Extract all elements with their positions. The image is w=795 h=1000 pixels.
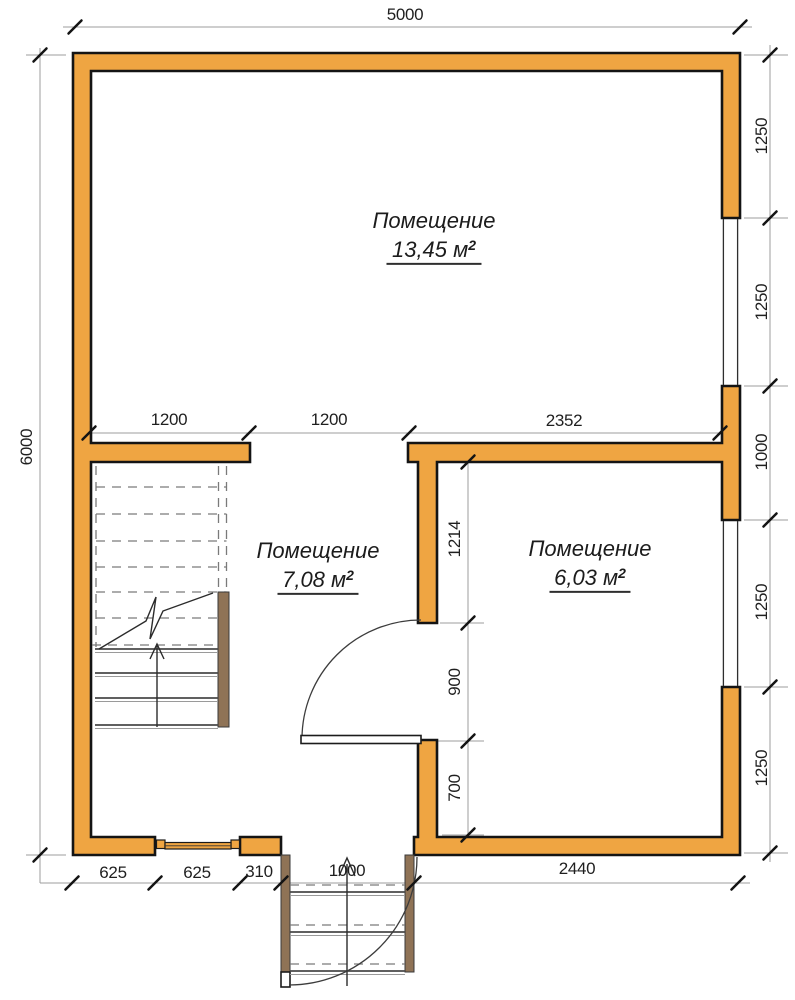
stair-direction-arrow [150,644,164,727]
dim-vertical-label-2: 900 [445,668,465,695]
dim-interior-label-1: 1200 [151,410,188,430]
porch-left-post [281,855,290,972]
interior-door-leaf [301,736,421,744]
room-area: 13,45 м2 [387,238,481,265]
room-area: 7,08 м2 [277,568,359,595]
stair-stringer [218,592,229,727]
dim-bottom-label-2: 625 [183,863,210,883]
window-right-upper [723,219,737,385]
dim-right-label-4: 1250 [752,584,772,621]
wall-bottom-stub [240,837,281,855]
wall-bottom-right [414,687,740,855]
dim-bottom-label-3: 310 [245,862,272,882]
window-bottom [157,840,240,849]
interior-door-swing-arc [302,620,421,739]
porch-door-end [281,972,290,987]
floor-plan: 5000 6000 1250 1250 1000 1250 1250 1200 … [0,0,795,1000]
dim-top-label: 5000 [387,5,424,25]
porch-right-post [405,855,414,972]
room-name: Помещение [528,537,651,561]
room-label-1: Помещение 13,45 м2 [372,209,495,265]
dim-right-label-3: 1000 [752,434,772,471]
dim-left-label: 6000 [17,429,37,466]
room-name: Помещение [256,539,379,563]
room-label-3: Помещение 6,03 м2 [528,537,651,593]
room-label-2: Помещение 7,08 м2 [256,539,379,595]
dim-right-label-5: 1250 [752,750,772,787]
dim-interior-label-3: 2352 [546,411,583,431]
dim-bottom-label-5: 2440 [559,859,596,879]
dim-bottom-label-1: 625 [99,863,126,883]
floor-plan-drawing [0,0,795,1000]
room-name: Помещение [372,209,495,233]
stair-break-line [99,593,213,649]
dim-interior-label-2: 1200 [311,410,348,430]
dim-right-label-1: 1250 [752,118,772,155]
window-right-lower [723,521,737,686]
dim-vertical-label-1: 1214 [445,521,465,558]
room-area: 6,03 м2 [549,566,631,593]
dim-bottom-label-4: 1000 [329,861,366,881]
interior-door [301,620,421,744]
dim-vertical-label-3: 700 [445,774,465,801]
dim-right-label-2: 1250 [752,284,772,321]
interior-staircase [92,466,229,729]
